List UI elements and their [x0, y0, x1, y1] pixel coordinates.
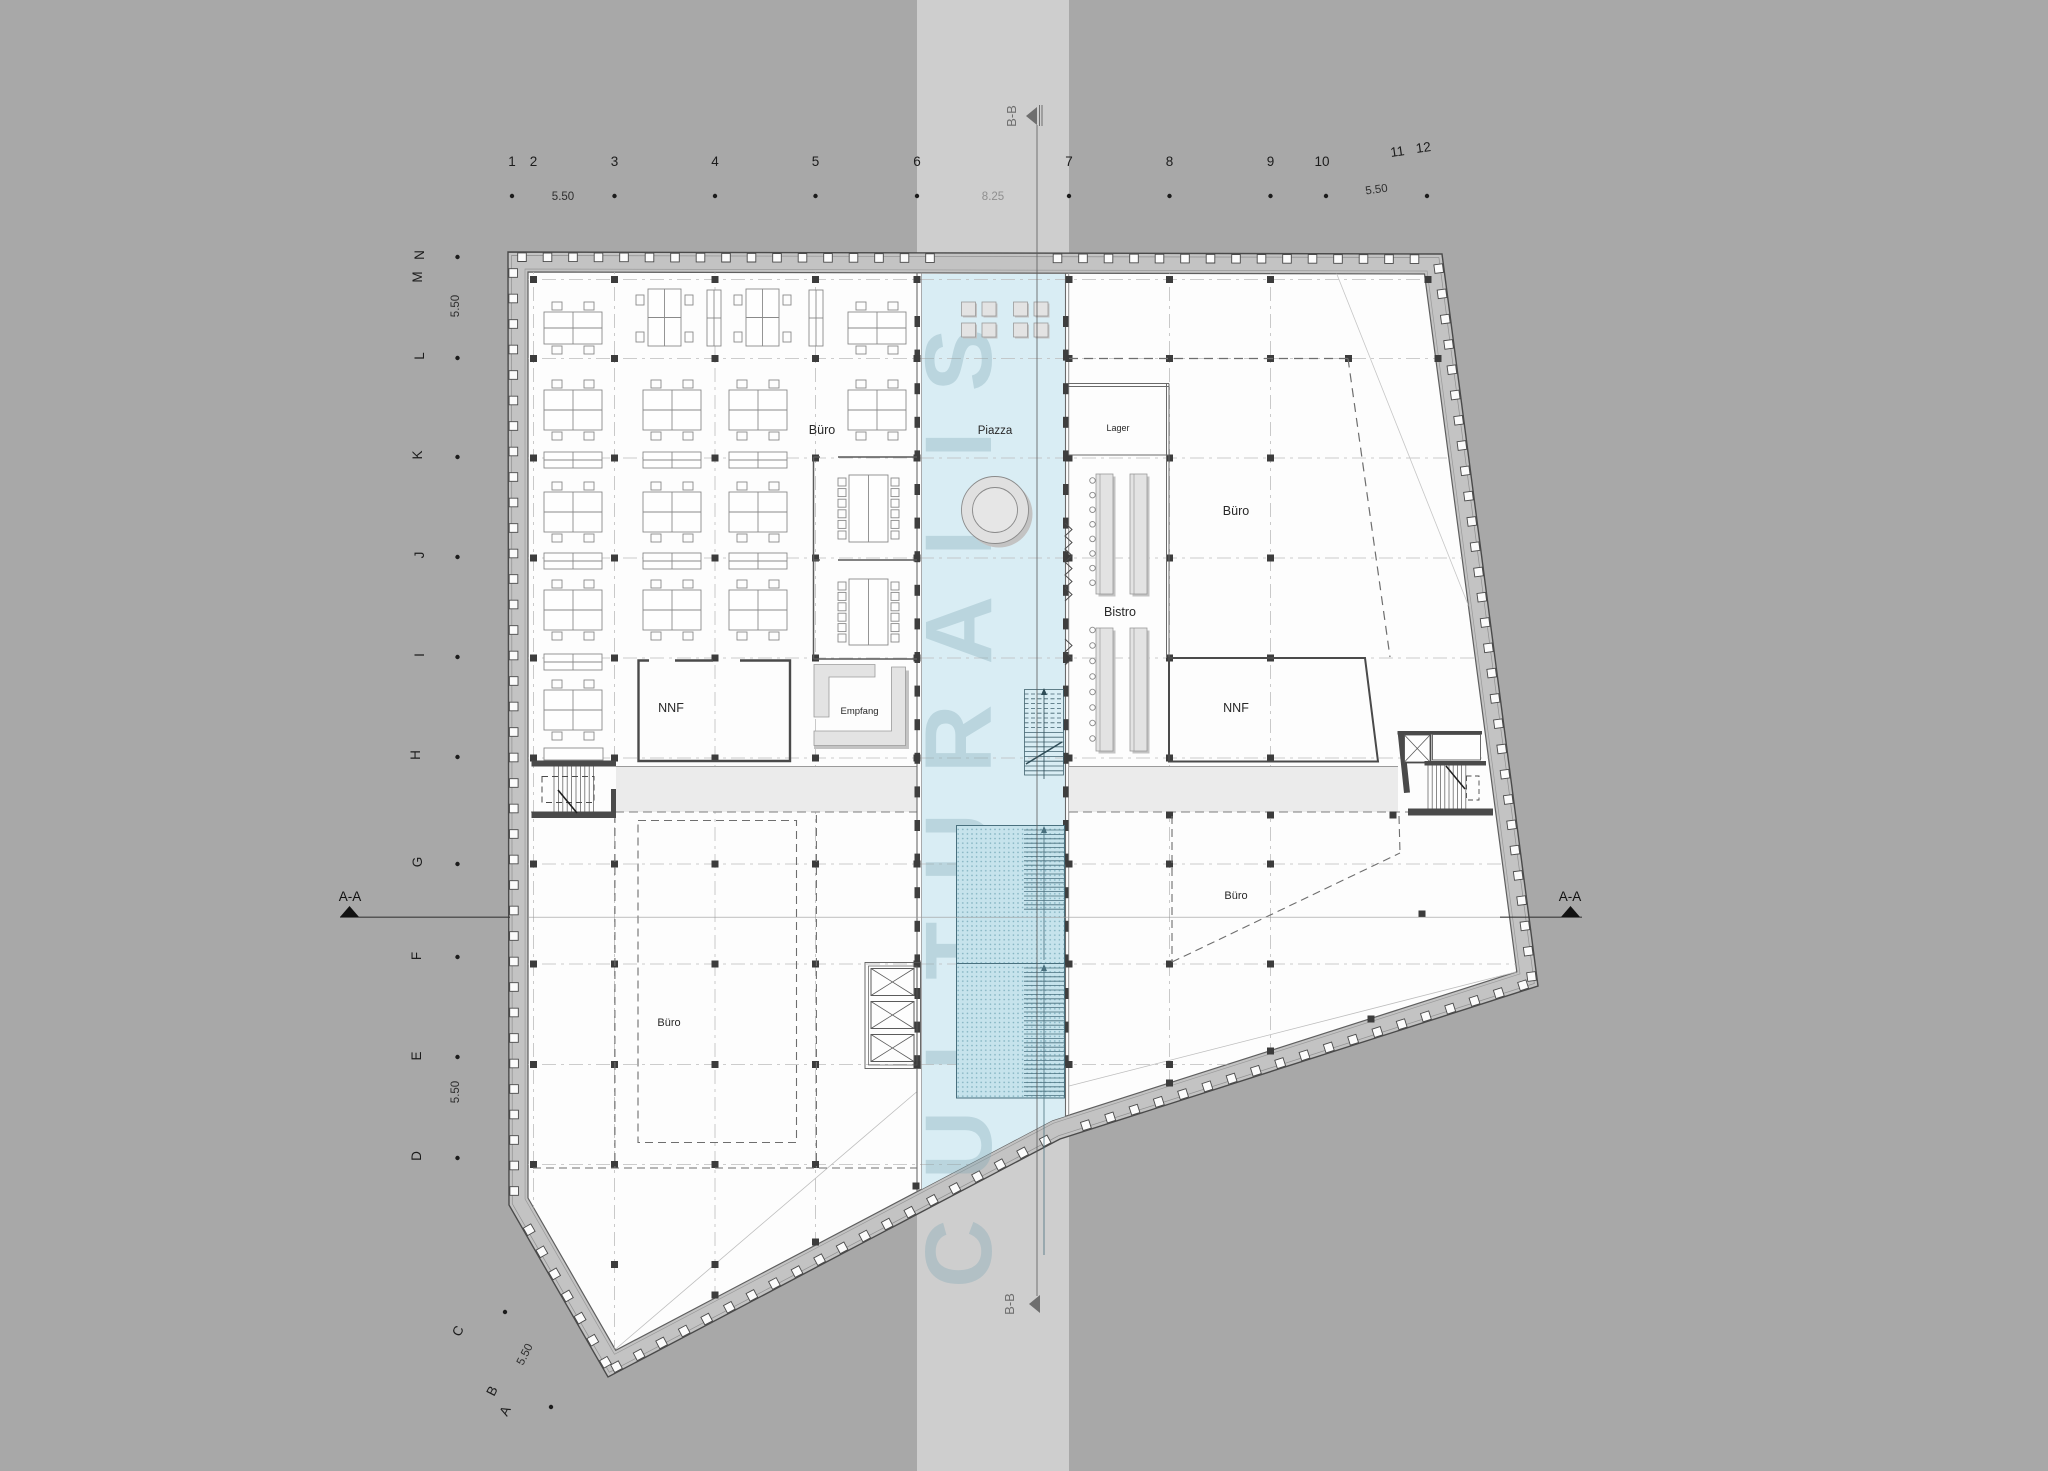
- svg-text:G: G: [410, 857, 425, 868]
- svg-text:J: J: [412, 552, 427, 559]
- svg-text:Büro: Büro: [809, 423, 835, 437]
- svg-text:NNF: NNF: [1223, 701, 1249, 715]
- svg-text:Bistro: Bistro: [1104, 605, 1136, 619]
- svg-text:8.25: 8.25: [982, 191, 1004, 203]
- svg-text:L: L: [412, 352, 427, 360]
- svg-text:D: D: [409, 1151, 424, 1161]
- svg-text:3: 3: [611, 154, 619, 169]
- svg-text:8: 8: [1166, 154, 1174, 169]
- svg-text:N: N: [412, 250, 427, 260]
- svg-text:Piazza: Piazza: [978, 425, 1013, 437]
- svg-text:I: I: [412, 653, 427, 657]
- svg-text:12: 12: [1415, 139, 1432, 156]
- svg-text:Büro: Büro: [657, 1017, 680, 1029]
- svg-text:11: 11: [1389, 143, 1405, 160]
- svg-text:CULTURALIS: CULTURALIS: [906, 288, 1012, 1288]
- svg-text:Empfang: Empfang: [840, 706, 878, 717]
- svg-text:E: E: [409, 1051, 424, 1060]
- svg-text:5.50: 5.50: [450, 1081, 462, 1103]
- svg-text:5: 5: [812, 154, 820, 169]
- svg-text:B-B: B-B: [1004, 105, 1019, 127]
- svg-text:A-A: A-A: [1559, 889, 1582, 904]
- svg-text:7: 7: [1065, 154, 1073, 169]
- svg-text:H: H: [408, 750, 423, 760]
- svg-text:4: 4: [711, 154, 719, 169]
- svg-text:Büro: Büro: [1223, 504, 1249, 518]
- svg-text:6: 6: [913, 154, 921, 169]
- svg-text:5.50: 5.50: [552, 191, 574, 203]
- svg-text:NNF: NNF: [658, 701, 684, 715]
- svg-text:2: 2: [530, 154, 538, 169]
- svg-text:9: 9: [1267, 154, 1275, 169]
- svg-text:10: 10: [1314, 154, 1329, 169]
- svg-text:Lager: Lager: [1106, 423, 1129, 433]
- svg-text:Büro: Büro: [1224, 890, 1247, 902]
- svg-text:A-A: A-A: [339, 889, 362, 904]
- svg-text:B-B: B-B: [1002, 1293, 1017, 1315]
- svg-text:5.50: 5.50: [450, 295, 462, 317]
- svg-text:F: F: [409, 952, 424, 960]
- svg-text:M: M: [410, 271, 425, 282]
- svg-text:K: K: [410, 450, 425, 459]
- svg-text:1: 1: [508, 154, 516, 169]
